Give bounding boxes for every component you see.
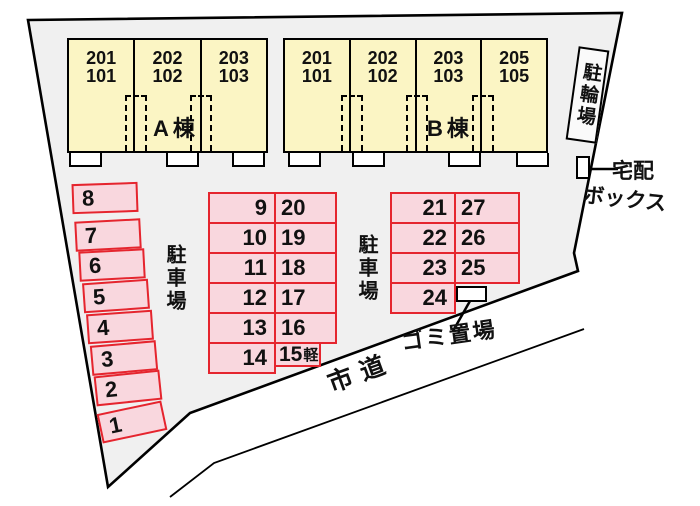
parking-space-21: 21: [392, 194, 456, 224]
parking-space-10: 10: [210, 224, 276, 254]
parking-space-15-kei: 15 軽: [276, 344, 321, 367]
parking-space-26: 26: [456, 224, 520, 254]
parking-space-7: 7: [74, 218, 141, 251]
entrance-porch: [69, 153, 102, 167]
stairs-dashed-outline: [472, 95, 494, 151]
parking-space-11: 11: [210, 254, 276, 284]
entrance-porch: [232, 153, 265, 167]
stairs-dashed-outline: [190, 95, 212, 151]
unit-number-label: 201 101: [285, 40, 349, 85]
parking-space-18: 18: [276, 254, 337, 284]
entrance-porch: [516, 153, 549, 167]
parking-lot-label-left: 駐車場: [160, 244, 189, 313]
delivery-box-icon: [576, 156, 590, 179]
entrance-porch: [166, 153, 199, 167]
middle-parking-grid: 9 20 10 19 11 18 12 17 13 16 14 15 軽: [208, 192, 337, 374]
right-parking-grid: 21 27 22 26 23 25 24: [390, 192, 520, 314]
building-a-unit-1: 201 101: [69, 40, 133, 151]
parking-space-6: 6: [78, 248, 145, 281]
parking-space-4: 4: [86, 310, 154, 345]
parking-space-24: 24: [392, 284, 456, 314]
unit-number-label: 202 102: [135, 40, 199, 85]
delivery-box-label-line1: 宅配: [612, 155, 654, 185]
parking-space-16: 16: [276, 314, 337, 344]
building-a: 201 101 202 102 203 103 A棟: [67, 38, 268, 153]
parking-space-12: 12: [210, 284, 276, 314]
entrance-porch: [288, 153, 321, 167]
building-b: 201 101 202 102 203 103 205 105 B棟: [283, 38, 548, 153]
building-b-unit-1: 201 101: [285, 40, 349, 151]
parking-space-9: 9: [210, 194, 276, 224]
parking-space-14: 14: [210, 344, 276, 374]
parking-space-8: 8: [71, 182, 138, 214]
parking-space-19: 19: [276, 224, 337, 254]
parking-space-23: 23: [392, 254, 456, 284]
unit-number-label: 203 103: [202, 40, 266, 85]
unit-number-label: 203 103: [417, 40, 481, 85]
parking-space-20: 20: [276, 194, 337, 224]
parking-lot-label-right: 駐車場: [352, 234, 381, 303]
building-b-name: B棟: [427, 111, 473, 143]
unit-number-label: 205 105: [482, 40, 546, 85]
parking-space-22: 22: [392, 224, 456, 254]
parking-space-5: 5: [82, 279, 150, 314]
stairs-dashed-outline: [406, 95, 428, 151]
garbage-area-icon: [456, 286, 487, 302]
unit-number-label: 202 102: [351, 40, 415, 85]
parking-space-27: 27: [456, 194, 520, 224]
entrance-porch: [448, 153, 481, 167]
parking-space-17: 17: [276, 284, 337, 314]
kei-space-number: 15: [279, 343, 302, 367]
parking-space-13: 13: [210, 314, 276, 344]
parking-space-25: 25: [456, 254, 520, 284]
kei-suffix-label: 軽: [303, 344, 318, 365]
stairs-dashed-outline: [125, 95, 147, 151]
entrance-porch: [352, 153, 385, 167]
stairs-dashed-outline: [341, 95, 363, 151]
unit-number-label: 201 101: [69, 40, 133, 85]
site-plan: 201 101 202 102 203 103 A棟 201 101 202 1…: [0, 0, 700, 506]
